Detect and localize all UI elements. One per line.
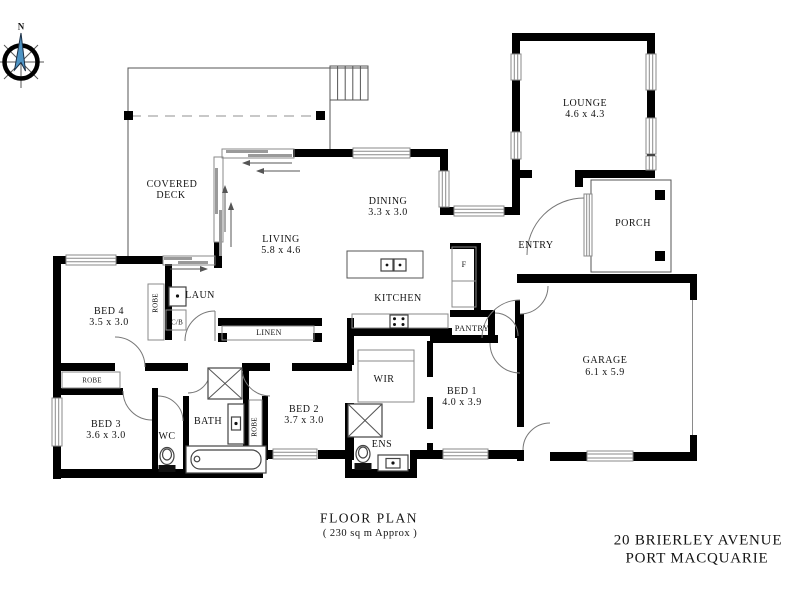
robe-label: ROBE [252,417,259,436]
window [66,255,116,265]
robe-label: ROBE [82,378,101,385]
window [511,132,521,159]
cooktop-icon [390,315,408,328]
window [646,54,656,90]
room-label-covered-deck: COVERED [147,180,198,190]
window [443,449,488,459]
front-door-leaf [584,194,592,256]
room-dims-dining: 3.3 x 3.0 [368,208,408,218]
address-line-1: 20 BRIERLEY AVENUE [614,534,783,549]
room-label-living: LIVING [262,235,299,245]
deck-stairs [330,66,368,100]
room-dims-living: 5.8 x 4.6 [261,246,301,256]
room-dims-garage: 6.1 x 5.9 [585,368,625,378]
room-label-bed1: BED 1 [447,387,477,397]
window [353,148,410,158]
room-label-kitchen: KITCHEN [374,294,421,304]
floor-plan: N COVERED DECK LOUNGE 4.6 x 4.3 DINING 3… [0,0,800,600]
deck-post [316,111,325,120]
toilet-icon [159,448,176,473]
room-label-entry: ENTRY [518,241,553,251]
linen-label: LINEN [256,329,282,337]
window [646,118,656,154]
room-dims-bed3: 3.6 x 3.0 [86,431,126,441]
porch-post [655,190,665,200]
porch-post [655,251,665,261]
window [511,54,521,80]
shower-icon [348,404,382,437]
toilet-icon [355,446,372,471]
room-label-pantry: PANTRY [455,324,490,333]
kitchen-island [347,251,423,278]
room-dims-bed1: 4.0 x 3.9 [442,398,482,408]
room-label-porch: PORCH [615,219,651,229]
room-label-wir: WIR [374,375,395,385]
bathtub-icon [186,446,266,473]
window [646,156,656,170]
fridge-label: F [462,261,467,269]
address-line-2: PORT MACQUARIE [626,552,769,567]
fridge-box [452,281,476,307]
room-dims-lounge: 4.6 x 4.3 [565,110,605,120]
plan-subtitle: ( 230 sq m Approx ) [323,529,417,540]
room-label-wc: WC [158,432,175,442]
room-label-dining: DINING [369,197,408,207]
plan-title: FLOOR PLAN [320,511,418,525]
window [439,171,449,207]
room-label-laundry: LAUN [185,291,215,301]
room-label-garage: GARAGE [583,356,628,366]
vanity-icon [378,455,408,471]
room-label-covered-deck: DECK [156,191,185,201]
laundry-tub-icon [169,287,186,306]
deck-post [124,111,133,120]
room-label-bed2: BED 2 [289,405,319,415]
room-label-lounge: LOUNGE [563,99,607,109]
room-dims-bed2: 3.7 x 3.0 [284,416,324,426]
room-label-bath: BATH [194,417,222,427]
window [454,206,504,216]
robe-label: ROBE [153,293,160,312]
room-label-ens: ENS [372,440,392,450]
room-dims-bed4: 3.5 x 3.0 [89,318,129,328]
cupboard-label: C/B [171,320,183,327]
shower-icon [208,368,242,399]
compass-rose-icon [0,33,44,88]
compass-north-label: N [18,23,25,32]
covered-deck-outline [124,68,368,256]
window [52,398,62,446]
garage-door [587,451,633,461]
vanity-icon [228,404,244,444]
room-label-bed4: BED 4 [94,307,124,317]
room-label-bed3: BED 3 [91,420,121,430]
window [273,449,317,459]
